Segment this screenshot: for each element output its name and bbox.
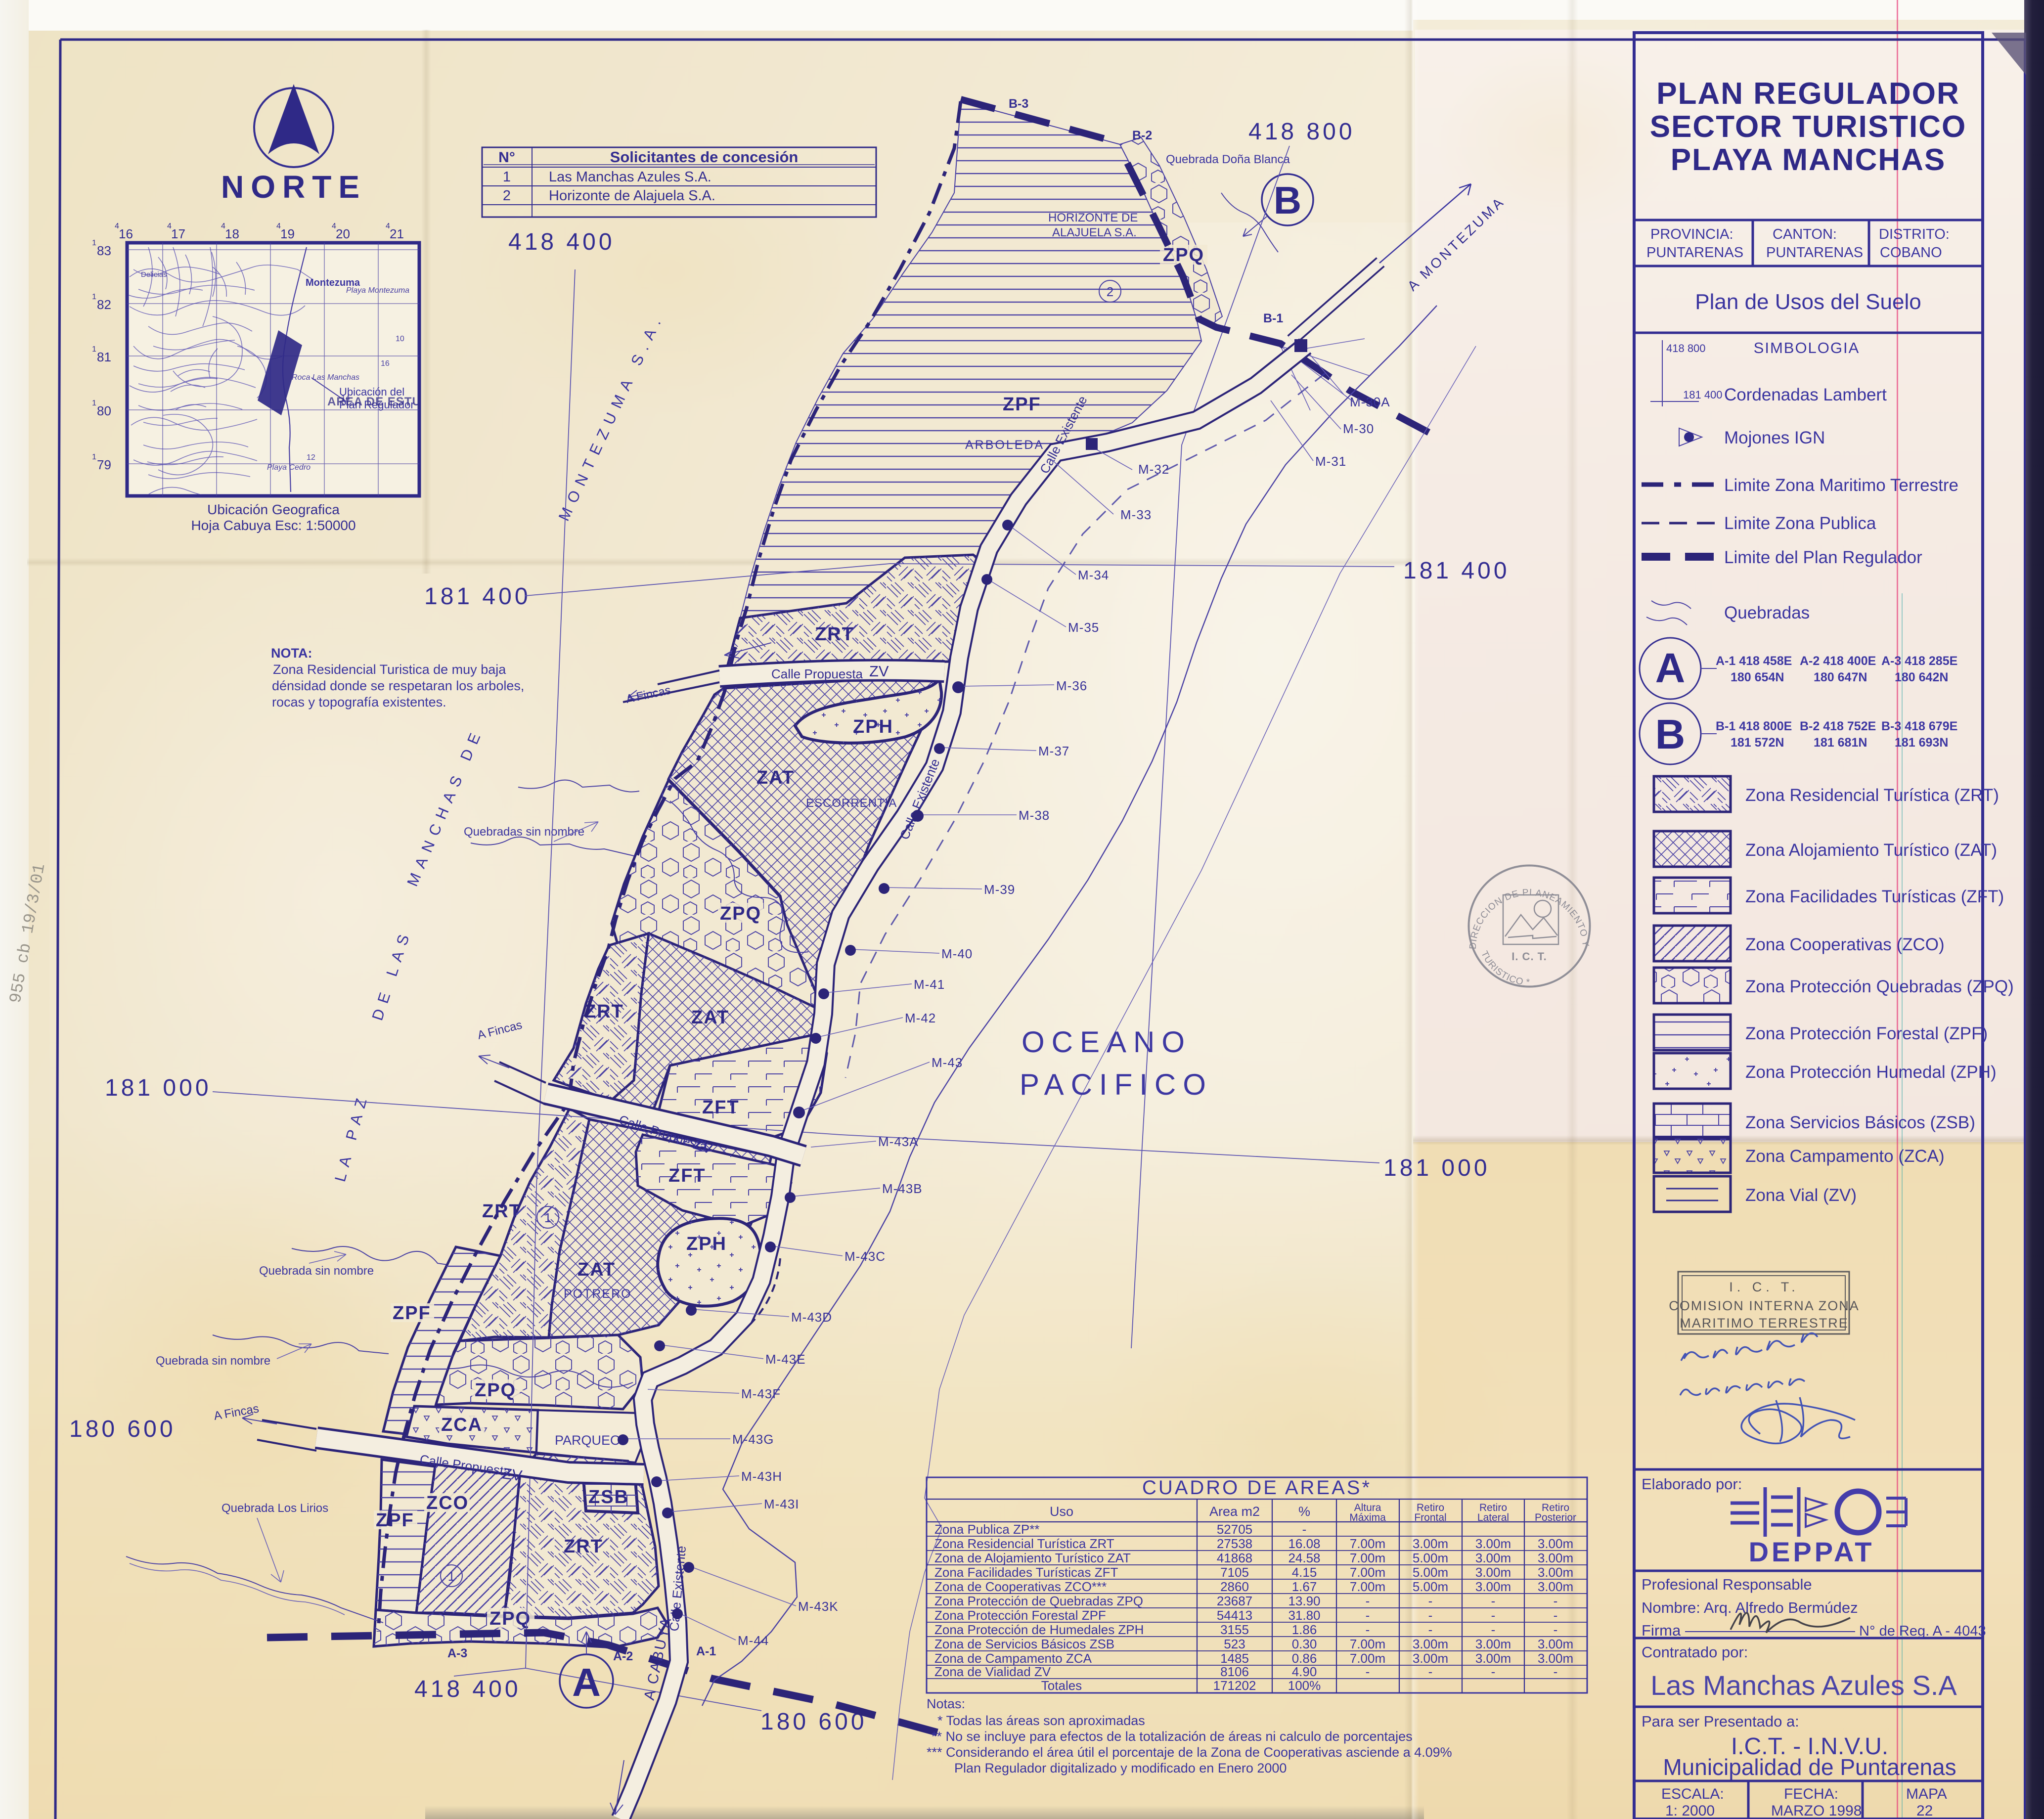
svg-text:B: B (1655, 711, 1686, 757)
svg-text:3.00m: 3.00m (1538, 1536, 1573, 1551)
svg-text:27538: 27538 (1217, 1536, 1252, 1551)
svg-text:1: 1 (92, 239, 96, 247)
svg-text:-: - (1554, 1594, 1558, 1608)
svg-text:ZRT: ZRT (815, 624, 854, 645)
svg-text:A-2: A-2 (613, 1649, 633, 1663)
svg-text:ZAT: ZAT (691, 1007, 729, 1028)
svg-text:-: - (1428, 1608, 1433, 1623)
svg-text:Quebrada sin nombre: Quebrada sin nombre (156, 1354, 270, 1368)
svg-text:418 800: 418 800 (1666, 342, 1706, 355)
svg-text:M-33: M-33 (1120, 507, 1152, 522)
svg-text:OCEANO: OCEANO (1022, 1025, 1192, 1059)
svg-text:Zona Protección de Quebradas: Zona Protección de Quebradas ZPQ (934, 1594, 1143, 1608)
svg-text:0.86: 0.86 (1292, 1651, 1317, 1666)
svg-text:3.00m: 3.00m (1538, 1565, 1573, 1580)
svg-text:rocas y topografía existentes.: rocas y topografía existentes. (272, 695, 446, 710)
svg-text:B-1: B-1 (1263, 311, 1283, 325)
svg-text:3.00m: 3.00m (1413, 1637, 1448, 1651)
svg-text:A-3 418 285E: A-3 418 285E (1881, 654, 1957, 668)
svg-text:19: 19 (280, 226, 295, 241)
svg-text:418 400: 418 400 (414, 1676, 521, 1702)
svg-text:3.00m: 3.00m (1475, 1551, 1511, 1565)
svg-text:A: A (572, 1660, 601, 1704)
svg-text:3.00m: 3.00m (1538, 1551, 1573, 1565)
svg-text:1: 1 (92, 293, 96, 301)
svg-text:Zona Protección Humedal (ZPH): Zona Protección Humedal (ZPH) (1745, 1063, 1997, 1082)
svg-text:Ubicación Geografica: Ubicación Geografica (207, 502, 340, 517)
svg-text:A Fincas: A Fincas (476, 1018, 524, 1042)
svg-text:8106: 8106 (1220, 1664, 1249, 1679)
svg-text:100%: 100% (1288, 1678, 1321, 1693)
svg-text:-: - (1366, 1608, 1370, 1623)
svg-text:M-43C: M-43C (844, 1249, 886, 1264)
svg-text:1: 1 (92, 345, 96, 354)
svg-text:418 800: 418 800 (1248, 119, 1355, 145)
svg-text:171202: 171202 (1213, 1678, 1256, 1693)
svg-text:31.80: 31.80 (1288, 1608, 1320, 1623)
svg-text:Zona Protección Forestal ZPF: Zona Protección Forestal ZPF (934, 1608, 1106, 1623)
svg-text:1.67: 1.67 (1292, 1579, 1317, 1594)
svg-text:B-1 418 800E: B-1 418 800E (1716, 719, 1792, 733)
svg-text:4.15: 4.15 (1292, 1565, 1317, 1580)
svg-text:Limite Zona Publica: Limite Zona Publica (1724, 514, 1876, 533)
svg-text:MANCHAS DE: MANCHAS DE (403, 724, 487, 889)
svg-text:7.00m: 7.00m (1350, 1579, 1385, 1594)
svg-text:Playa Montezuma: Playa Montezuma (346, 286, 409, 295)
svg-text:16: 16 (381, 359, 390, 368)
svg-text:ZPQ: ZPQ (720, 903, 761, 924)
svg-text:3155: 3155 (1220, 1622, 1249, 1637)
svg-text:181 400: 181 400 (1403, 558, 1510, 584)
svg-text:1: 1 (92, 399, 96, 407)
svg-text:7.00m: 7.00m (1350, 1637, 1385, 1651)
svg-text:13.90: 13.90 (1288, 1594, 1320, 1608)
svg-text:181 400: 181 400 (424, 583, 531, 610)
svg-text:M-43H: M-43H (741, 1469, 782, 1484)
svg-text:NOTA:: NOTA: (271, 646, 312, 661)
svg-text:82: 82 (97, 297, 111, 312)
svg-text:Frontal: Frontal (1414, 1512, 1446, 1523)
svg-text:Zona de Alojamiento Turístico: Zona de Alojamiento Turístico ZAT (934, 1551, 1131, 1565)
svg-text:Mojones IGN: Mojones IGN (1724, 428, 1825, 447)
svg-text:ZPF: ZPF (1003, 394, 1041, 415)
svg-text:M-38: M-38 (1019, 808, 1050, 823)
svg-text:-: - (1428, 1664, 1433, 1679)
svg-text:-: - (1366, 1664, 1370, 1679)
svg-text:Zona Residencial Turistica de: Zona Residencial Turistica de muy baja (273, 662, 506, 677)
svg-text:Quebrada Los Lirios: Quebrada Los Lirios (222, 1502, 328, 1515)
svg-text:ZV: ZV (501, 1464, 523, 1484)
svg-text:Zona Alojamiento Turístico (ZA: Zona Alojamiento Turístico (ZAT) (1745, 841, 1997, 860)
svg-text:ZPH: ZPH (853, 716, 893, 737)
svg-text:Zona Servicios Básicos (ZSB): Zona Servicios Básicos (ZSB) (1745, 1113, 1975, 1132)
svg-text:ZFT: ZFT (668, 1165, 706, 1186)
svg-text:MARITIMO TERRESTRE: MARITIMO TERRESTRE (1680, 1316, 1849, 1331)
svg-text:3.00m: 3.00m (1475, 1536, 1511, 1551)
svg-text:N° de Reg. A - 4043: N° de Reg. A - 4043 (1859, 1623, 1986, 1639)
svg-text:I. C. T.: I. C. T. (1511, 950, 1547, 963)
svg-text:-: - (1491, 1664, 1496, 1679)
svg-text:Zona Vial (ZV): Zona Vial (ZV) (1745, 1186, 1857, 1205)
svg-text:16.08: 16.08 (1288, 1536, 1320, 1551)
svg-text:Zona Protección de Humedales: Zona Protección de Humedales ZPH (934, 1622, 1144, 1637)
svg-text:** No se incluye para efectos: ** No se incluye para efectos de la tota… (932, 1729, 1413, 1744)
svg-text:DISTRITO:: DISTRITO: (1879, 226, 1950, 242)
svg-text:M-43B: M-43B (882, 1181, 923, 1196)
svg-text:Lateral: Lateral (1477, 1512, 1509, 1523)
svg-text:ZPF: ZPF (393, 1303, 431, 1324)
svg-text:4: 4 (221, 222, 225, 230)
svg-text:Limite del Plan Regulador: Limite del Plan Regulador (1724, 548, 1922, 567)
svg-text:2: 2 (503, 188, 511, 204)
svg-text:Zona Facilidades Turísticas Z: Zona Facilidades Turísticas ZFT (934, 1565, 1118, 1580)
svg-text:B: B (1274, 178, 1301, 222)
svg-text:Hoja Cabuya Esc: 1:50000: Hoja Cabuya Esc: 1:50000 (191, 518, 355, 533)
svg-text:7.00m: 7.00m (1350, 1551, 1385, 1565)
svg-text:7105: 7105 (1220, 1565, 1249, 1580)
svg-text:3.00m: 3.00m (1475, 1565, 1511, 1580)
svg-text:180 600: 180 600 (69, 1416, 176, 1442)
svg-text:12: 12 (307, 453, 315, 462)
svg-text:5.00m: 5.00m (1413, 1579, 1448, 1594)
svg-text:PUNTARENAS: PUNTARENAS (1766, 245, 1863, 261)
svg-text:5.00m: 5.00m (1413, 1565, 1448, 1580)
svg-text:79: 79 (97, 457, 111, 472)
svg-text:41868: 41868 (1217, 1551, 1252, 1565)
svg-text:CANTON:: CANTON: (1773, 226, 1837, 242)
svg-text:17: 17 (171, 226, 185, 241)
svg-text:M-36: M-36 (1056, 678, 1087, 693)
svg-text:Zona de Cooperativas ZCO***: Zona de Cooperativas ZCO*** (934, 1579, 1107, 1594)
svg-text:Posterior: Posterior (1535, 1512, 1576, 1523)
svg-text:Horizonte de Alajuela S.A.: Horizonte de Alajuela S.A. (549, 188, 715, 204)
svg-text:PLAYA MANCHAS: PLAYA MANCHAS (1671, 143, 1946, 177)
svg-text:COBANO: COBANO (1880, 245, 1942, 261)
svg-text:PUNTARENAS: PUNTARENAS (1646, 245, 1743, 261)
svg-text:Totales: Totales (1041, 1678, 1082, 1693)
svg-text:M-35: M-35 (1068, 620, 1099, 635)
svg-text:1: 1 (544, 1210, 551, 1225)
svg-text:ZPF: ZPF (376, 1510, 414, 1531)
svg-text:2: 2 (1107, 284, 1113, 299)
svg-text:0.30: 0.30 (1292, 1637, 1317, 1651)
svg-text:-: - (1554, 1622, 1558, 1637)
svg-text:523: 523 (1224, 1637, 1245, 1651)
svg-text:Area m2: Area m2 (1209, 1504, 1260, 1519)
svg-text:1: 1 (448, 1569, 455, 1584)
svg-text:Calle Propuesta: Calle Propuesta (771, 666, 863, 681)
svg-text:Zona Protección Forestal (ZPF): Zona Protección Forestal (ZPF) (1745, 1024, 1988, 1043)
svg-text:M-43E: M-43E (765, 1352, 806, 1367)
svg-text:Zona de Campamento ZCA: Zona de Campamento ZCA (934, 1651, 1092, 1666)
svg-text:FECHA:: FECHA: (1784, 1786, 1838, 1802)
svg-text:A: A (1655, 645, 1686, 691)
svg-text:M-39: M-39 (984, 882, 1015, 897)
svg-text:ZPQ: ZPQ (1163, 245, 1204, 266)
svg-text:4: 4 (167, 222, 172, 230)
svg-text:7.00m: 7.00m (1350, 1651, 1385, 1666)
svg-text:PARQUEO: PARQUEO (555, 1433, 621, 1448)
svg-text:M-42: M-42 (905, 1011, 936, 1025)
svg-text:Para ser Presentado a:: Para ser Presentado a: (1642, 1713, 1799, 1730)
svg-text:418 400: 418 400 (508, 229, 615, 255)
svg-text:Quebrada Doña Blanca: Quebrada Doña Blanca (1166, 153, 1290, 166)
svg-text:Quebrada sin nombre: Quebrada sin nombre (259, 1264, 374, 1278)
svg-text:180 654N: 180 654N (1731, 670, 1784, 684)
svg-text:181 572N: 181 572N (1731, 736, 1784, 750)
svg-text:M-32: M-32 (1138, 462, 1169, 477)
svg-text:B-3 418 679E: B-3 418 679E (1881, 719, 1957, 733)
svg-text:Máxima: Máxima (1349, 1512, 1386, 1523)
svg-text:7.00m: 7.00m (1350, 1536, 1385, 1551)
svg-text:SECTOR TURISTICO: SECTOR TURISTICO (1650, 110, 1967, 144)
svg-text:ZFT: ZFT (702, 1097, 740, 1118)
svg-text:Plan Regulador digitalizado y: Plan Regulador digitalizado y modificado… (954, 1761, 1287, 1775)
svg-text:M-44: M-44 (738, 1633, 769, 1648)
svg-text:1: 1 (92, 453, 96, 461)
svg-text:181 400: 181 400 (1683, 389, 1723, 401)
svg-text:ZV: ZV (869, 663, 889, 680)
svg-text:M-34: M-34 (1078, 568, 1109, 582)
svg-text:LA PAZ: LA PAZ (331, 1090, 372, 1184)
svg-text:COMISION INTERNA ZONA: COMISION INTERNA ZONA (1669, 1298, 1860, 1313)
svg-text:52705: 52705 (1217, 1522, 1252, 1537)
svg-text:ZAT: ZAT (578, 1259, 616, 1280)
svg-text:ZPQ: ZPQ (489, 1608, 531, 1629)
svg-text:-: - (1366, 1594, 1370, 1608)
svg-text:Delicias: Delicias (141, 270, 167, 279)
svg-text:A-1 418 458E: A-1 418 458E (1716, 654, 1792, 668)
svg-text:4: 4 (332, 222, 336, 230)
svg-text:B-3: B-3 (1009, 97, 1028, 111)
svg-text:CUADRO DE AREAS*: CUADRO DE AREAS* (1142, 1477, 1372, 1499)
svg-text:ARBOLEDA: ARBOLEDA (965, 438, 1044, 452)
svg-text:MAPA: MAPA (1906, 1786, 1947, 1802)
svg-text:DEPPAT: DEPPAT (1749, 1536, 1875, 1567)
svg-text:A-3: A-3 (447, 1646, 467, 1660)
svg-text:7.00m: 7.00m (1350, 1565, 1385, 1580)
svg-text:Zona Residencial Turística (ZR: Zona Residencial Turística (ZRT) (1745, 786, 1999, 805)
svg-text:* Todas las áreas son aproxim: * Todas las áreas son aproximadas (937, 1713, 1145, 1728)
svg-text:dénsidad donde se respetaran l: dénsidad donde se respetaran los arboles… (272, 678, 524, 693)
svg-text:SIMBOLOGIA: SIMBOLOGIA (1754, 339, 1860, 356)
svg-text:54413: 54413 (1217, 1608, 1252, 1623)
svg-text:1: 2000: 1: 2000 (1665, 1803, 1715, 1819)
svg-text:DE LAS: DE LAS (368, 926, 414, 1023)
svg-text:M-43: M-43 (932, 1055, 963, 1070)
svg-text:ESCORRENTIA: ESCORRENTIA (806, 797, 897, 810)
svg-text:%: % (1298, 1504, 1310, 1519)
svg-text:Zona de Vialidad ZV: Zona de Vialidad ZV (934, 1664, 1051, 1679)
svg-text:PROVINCIA:: PROVINCIA: (1650, 226, 1733, 242)
svg-text:4: 4 (276, 222, 281, 230)
svg-text:Elaborado por:: Elaborado por: (1642, 1475, 1742, 1493)
svg-text:-: - (1554, 1664, 1558, 1679)
svg-text:81: 81 (97, 350, 111, 364)
svg-text:2860: 2860 (1220, 1579, 1249, 1594)
svg-text:Playa Cedro: Playa Cedro (267, 463, 311, 472)
svg-text:M-43A: M-43A (878, 1134, 919, 1149)
svg-text:955 cb 19/3/01: 955 cb 19/3/01 (6, 862, 49, 1005)
svg-text:21: 21 (390, 226, 404, 241)
svg-text:NORTE: NORTE (221, 169, 366, 205)
svg-text:*** Considerando el área útil: *** Considerando el área útil el porcent… (927, 1745, 1452, 1760)
svg-text:16: 16 (119, 226, 133, 241)
svg-text:AREA DE ESTU: AREA DE ESTU (327, 395, 421, 408)
svg-text:3.00m: 3.00m (1538, 1579, 1573, 1594)
svg-text:M-37: M-37 (1038, 744, 1069, 758)
svg-text:Zona Protección Quebradas (ZPQ: Zona Protección Quebradas (ZPQ) (1745, 977, 2014, 996)
svg-text:Nombre: Arq. Alfredo Bermúdez: Nombre: Arq. Alfredo Bermúdez (1642, 1599, 1858, 1616)
svg-text:A Fincas: A Fincas (625, 683, 672, 706)
svg-text:Notas:: Notas: (927, 1696, 965, 1711)
svg-text:A-2 418 400E: A-2 418 400E (1800, 654, 1876, 668)
svg-text:181 681N: 181 681N (1814, 736, 1867, 750)
svg-text:-: - (1491, 1594, 1496, 1608)
svg-text:20: 20 (336, 226, 350, 241)
svg-text:M-40: M-40 (941, 946, 973, 961)
svg-text:B-2: B-2 (1132, 129, 1152, 142)
svg-text:181 693N: 181 693N (1895, 736, 1948, 750)
svg-text:180 647N: 180 647N (1814, 670, 1867, 684)
svg-text:Las Manchas Azules S.A.: Las Manchas Azules S.A. (549, 169, 711, 185)
svg-text:Las Manchas Azules S.A: Las Manchas Azules S.A (1650, 1670, 1957, 1701)
svg-text:Firma: Firma (1642, 1622, 1681, 1639)
svg-text:M-30: M-30 (1343, 421, 1374, 436)
svg-text:M-43F: M-43F (741, 1386, 781, 1401)
svg-text:ESCALA:: ESCALA: (1661, 1786, 1724, 1802)
svg-text:ALAJUELA S.A.: ALAJUELA S.A. (1052, 226, 1137, 239)
svg-text:3.00m: 3.00m (1538, 1651, 1573, 1666)
svg-text:PLAN REGULADOR: PLAN REGULADOR (1656, 77, 1960, 111)
svg-text:-: - (1491, 1608, 1496, 1623)
svg-text:Quebradas sin nombre: Quebradas sin nombre (464, 825, 584, 839)
svg-text:3.00m: 3.00m (1413, 1536, 1448, 1551)
svg-text:23687: 23687 (1217, 1594, 1252, 1608)
svg-text:10: 10 (396, 335, 404, 343)
svg-text:3.00m: 3.00m (1475, 1651, 1511, 1666)
svg-text:N°: N° (498, 149, 515, 166)
svg-text:ZCA: ZCA (441, 1415, 483, 1435)
svg-text:Roca Las Manchas: Roca Las Manchas (292, 373, 359, 382)
svg-text:B-2 418 752E: B-2 418 752E (1800, 719, 1876, 733)
svg-text:ZSB: ZSB (588, 1487, 629, 1508)
svg-text:Quebradas: Quebradas (1724, 603, 1810, 622)
svg-text:ZAT: ZAT (756, 767, 795, 788)
svg-text:HORIZONTE DE: HORIZONTE DE (1048, 211, 1138, 224)
svg-text:1.86: 1.86 (1292, 1622, 1317, 1637)
svg-text:M-30A: M-30A (1350, 395, 1390, 409)
svg-text:M-43K: M-43K (798, 1599, 839, 1614)
svg-text:Zona Publica ZP**: Zona Publica ZP** (934, 1522, 1039, 1537)
svg-text:24.58: 24.58 (1288, 1551, 1320, 1565)
svg-text:ZRT: ZRT (564, 1536, 603, 1557)
svg-text:A-1: A-1 (696, 1644, 716, 1658)
svg-text:Contratado por:: Contratado por: (1642, 1643, 1748, 1661)
svg-text:Uso: Uso (1050, 1504, 1073, 1519)
svg-text:PACIFICO: PACIFICO (1020, 1068, 1213, 1101)
svg-text:3.00m: 3.00m (1475, 1579, 1511, 1594)
svg-text:Profesional Responsable: Profesional Responsable (1642, 1576, 1812, 1593)
svg-text:180 642N: 180 642N (1895, 670, 1948, 684)
svg-text:M-43G: M-43G (732, 1432, 774, 1447)
svg-text:I. C. T.: I. C. T. (1729, 1280, 1799, 1294)
svg-text:83: 83 (97, 243, 111, 258)
svg-text:M-43D: M-43D (791, 1310, 832, 1325)
svg-text:M-41: M-41 (914, 977, 945, 992)
svg-text:3.00m: 3.00m (1475, 1637, 1511, 1651)
svg-text:Zona Campamento (ZCA): Zona Campamento (ZCA) (1745, 1147, 1945, 1166)
svg-text:-: - (1366, 1622, 1370, 1637)
svg-text:POTRERO: POTRERO (564, 1287, 632, 1301)
svg-text:1: 1 (503, 169, 511, 185)
svg-text:-: - (1428, 1622, 1433, 1637)
svg-text:-: - (1554, 1608, 1558, 1623)
svg-text:-: - (1491, 1622, 1496, 1637)
svg-text:-: - (1428, 1594, 1433, 1608)
svg-text:22: 22 (1916, 1803, 1933, 1819)
svg-text:MARZO 1998: MARZO 1998 (1771, 1803, 1862, 1819)
svg-text:4: 4 (386, 222, 390, 230)
svg-text:3.00m: 3.00m (1538, 1637, 1573, 1651)
svg-text:181 000: 181 000 (1383, 1155, 1490, 1181)
svg-text:3.00m: 3.00m (1413, 1651, 1448, 1666)
svg-text:-: - (1302, 1522, 1307, 1537)
svg-text:Cordenadas Lambert: Cordenadas Lambert (1724, 385, 1887, 404)
svg-text:Limite Zona Maritimo Terrestre: Limite Zona Maritimo Terrestre (1724, 476, 1958, 495)
svg-text:ZPQ: ZPQ (475, 1380, 516, 1401)
svg-text:5.00m: 5.00m (1413, 1551, 1448, 1565)
svg-text:181 000: 181 000 (105, 1075, 212, 1101)
svg-text:Plan de Usos del Suelo: Plan de Usos del Suelo (1695, 290, 1921, 314)
svg-text:M-43I: M-43I (764, 1497, 799, 1511)
svg-text:M-31: M-31 (1315, 454, 1346, 469)
svg-text:A MONTEZUMA: A MONTEZUMA (1405, 193, 1508, 294)
svg-text:Zona Cooperativas (ZCO): Zona Cooperativas (ZCO) (1745, 935, 1945, 954)
svg-text:Municipalidad de Puntarenas: Municipalidad de Puntarenas (1663, 1754, 1956, 1780)
svg-text:Zona de Servicios Básicos ZSB: Zona de Servicios Básicos ZSB (934, 1637, 1114, 1651)
svg-text:1485: 1485 (1220, 1651, 1249, 1666)
svg-text:4.90: 4.90 (1292, 1664, 1317, 1679)
svg-text:4: 4 (115, 222, 119, 230)
svg-text:Zona Residencial Turística ZR: Zona Residencial Turística ZRT (934, 1536, 1114, 1551)
svg-text:80: 80 (97, 403, 111, 418)
svg-text:18: 18 (225, 226, 239, 241)
svg-text:Solicitantes de concesión: Solicitantes de concesión (610, 148, 799, 166)
svg-text:Zona Facilidades Turísticas (Z: Zona Facilidades Turísticas (ZFT) (1745, 887, 2004, 906)
svg-text:ZCO: ZCO (426, 1493, 469, 1513)
svg-text:ZPH: ZPH (686, 1234, 727, 1254)
